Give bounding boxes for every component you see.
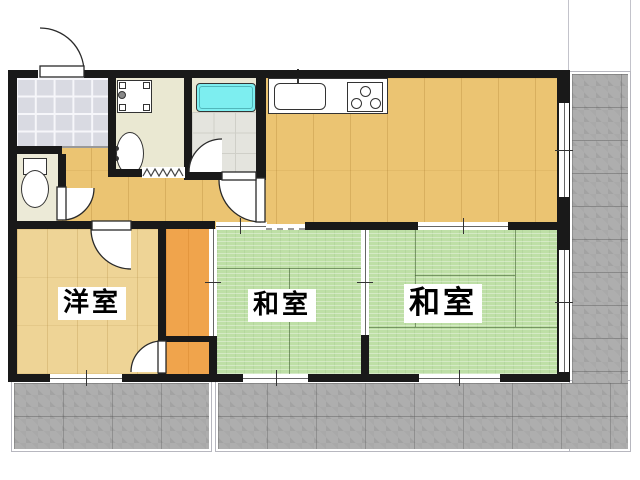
floor-plan: 洋室 和室 和室 xyxy=(0,0,640,480)
wall-dk-tatami xyxy=(508,222,557,230)
window-dk-right xyxy=(559,103,569,197)
tatami-joint xyxy=(515,229,516,327)
wall-washroom-left xyxy=(108,70,116,177)
burner-icon xyxy=(370,98,381,109)
kitchen-counter xyxy=(268,78,388,114)
closet-upper xyxy=(166,229,209,336)
window-japanese-room-small xyxy=(243,374,308,382)
entrance-door-swing xyxy=(40,28,84,72)
entrance-door-leaf xyxy=(40,66,84,77)
room-label-text: 和室 xyxy=(253,289,311,319)
window-western-room xyxy=(50,374,122,382)
site-boundary-line xyxy=(630,0,631,72)
wall-toilet-right xyxy=(58,154,66,187)
wall-closet-left xyxy=(158,222,166,336)
room-label-text: 和室 xyxy=(409,285,477,320)
washer-faucet-icon xyxy=(118,91,126,99)
wall-hall-south xyxy=(8,221,92,229)
stove-3-burner xyxy=(347,82,383,112)
window-japanese-room-large xyxy=(419,374,500,382)
wall-washroom-south xyxy=(108,169,143,177)
fusuma-closet-upper xyxy=(209,229,217,336)
wall-tatami-partition-lower xyxy=(361,335,369,382)
bathtub xyxy=(196,83,256,112)
fusuma-room-partition xyxy=(361,230,369,335)
open-boundary-dk-tatami xyxy=(266,224,305,230)
wall-genkan-toilet xyxy=(8,146,62,154)
balcony-bottom xyxy=(218,383,628,449)
washing-machine-pan xyxy=(117,80,152,113)
toilet-bowl xyxy=(21,170,49,208)
burner-icon xyxy=(360,86,371,97)
wall-bathroom-south xyxy=(184,172,222,180)
tatami-joint xyxy=(415,275,515,276)
room-label-japanese-large: 和室 xyxy=(404,284,482,323)
balcony-left xyxy=(14,383,209,449)
wall-dk-tatami xyxy=(305,222,418,230)
outer-wall-top xyxy=(84,70,570,78)
accordion-door-bg xyxy=(142,167,185,178)
genkan-step-edge xyxy=(60,146,110,148)
wall-bathroom-dk xyxy=(256,70,266,180)
wall-closet-left xyxy=(158,372,166,382)
sliding-door-dk-tatami xyxy=(418,222,508,230)
entrance-door-arc xyxy=(40,28,84,72)
closet-lower xyxy=(166,342,209,374)
window-japanese-room-large-right xyxy=(559,250,569,372)
room-label-text: 洋室 xyxy=(63,287,121,317)
burner-icon xyxy=(351,98,362,109)
room-label-japanese-small: 和室 xyxy=(248,289,316,322)
wall-washroom-bathroom xyxy=(184,70,192,180)
site-boundary-line xyxy=(568,0,569,72)
bathroom-tile-floor xyxy=(192,112,256,172)
genkan-entrance-floor xyxy=(16,78,110,148)
kitchen-sink xyxy=(274,83,326,110)
room-label-western: 洋室 xyxy=(58,287,126,320)
wall-closet-right-lower xyxy=(209,342,217,382)
sliding-door-hall-tatami xyxy=(216,222,267,230)
wall-hall-south xyxy=(131,221,215,229)
tatami-joint xyxy=(369,327,557,328)
